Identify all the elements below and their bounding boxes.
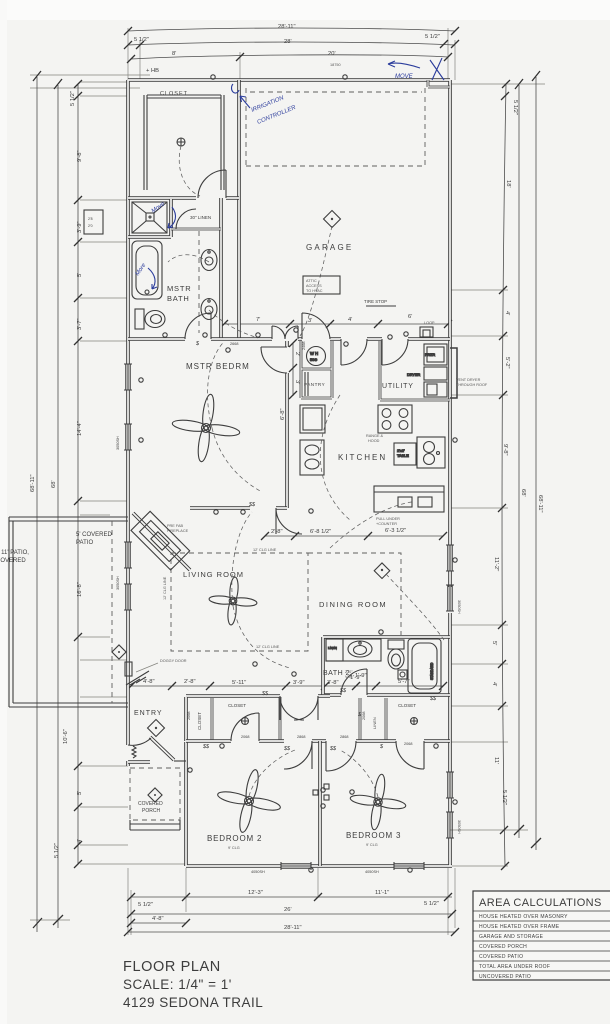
svg-text:STANDARD: STANDARD <box>430 662 434 680</box>
svg-text:TO HVAC: TO HVAC <box>306 289 323 293</box>
svg-text:+COUNTER: +COUNTER <box>376 522 397 526</box>
svg-text:5': 5' <box>77 273 83 277</box>
svg-text:LOOP: LOOP <box>424 321 435 325</box>
svg-text:2468: 2468 <box>302 342 306 350</box>
svg-text:2'-8": 2'-8" <box>184 679 196 685</box>
svg-text:FRZR: FRZR <box>425 353 435 357</box>
svg-text:CLOSET: CLOSET <box>160 91 188 97</box>
svg-text:5 1/2": 5 1/2" <box>70 91 76 106</box>
svg-text:6'-8 1/2": 6'-8 1/2" <box>310 529 331 535</box>
svg-text:DRYER: DRYER <box>407 373 420 377</box>
svg-text:2'-8": 2'-8" <box>271 529 283 535</box>
svg-text:2068: 2068 <box>362 712 366 720</box>
svg-text:AREA CALCULATIONS: AREA CALCULATIONS <box>479 897 602 909</box>
svg-text:COVERED PATIO: COVERED PATIO <box>479 954 523 960</box>
svg-text:11': 11' <box>493 757 499 764</box>
svg-text:GARAGE AND STORAGE: GARAGE AND STORAGE <box>479 934 544 940</box>
svg-text:$$: $$ <box>283 746 291 752</box>
svg-text:$$: $$ <box>248 502 256 508</box>
svg-text:68'-11": 68'-11" <box>30 474 36 492</box>
svg-text:2868: 2868 <box>297 735 305 739</box>
svg-text:9'-8": 9'-8" <box>77 150 83 162</box>
svg-text:UTILITY: UTILITY <box>382 383 414 390</box>
svg-text:2868: 2868 <box>340 735 348 739</box>
svg-text:5': 5' <box>491 641 497 645</box>
svg-text:LIVING ROOM: LIVING ROOM <box>183 570 244 579</box>
svg-text:3'-7": 3'-7" <box>77 318 83 330</box>
svg-text:26': 26' <box>284 907 292 913</box>
svg-text:CLOSET: CLOSET <box>398 703 416 708</box>
svg-text:30" LINEN: 30" LINEN <box>190 215 211 220</box>
svg-text:10' X 11' PATIO,: 10' X 11' PATIO, <box>0 550 29 556</box>
svg-text:68'-11": 68'-11" <box>537 495 543 513</box>
svg-text:VENT DRYER: VENT DRYER <box>456 378 481 382</box>
svg-text:3050SH: 3050SH <box>457 600 461 614</box>
svg-text:HOOD: HOOD <box>368 439 380 443</box>
svg-text:2068: 2068 <box>187 712 191 720</box>
svg-text:DINING ROOM: DINING ROOM <box>319 600 387 609</box>
svg-text:DOGGY DOOR: DOGGY DOOR <box>160 659 187 663</box>
svg-text:BATH: BATH <box>167 294 190 303</box>
svg-text:TIRE STOP: TIRE STOP <box>364 299 387 304</box>
svg-text:20': 20' <box>328 51 336 57</box>
svg-text:18': 18' <box>505 180 511 188</box>
svg-text:TABLE: TABLE <box>397 454 409 458</box>
svg-text:12' CLG LINE: 12' CLG LINE <box>253 548 277 552</box>
svg-text:68': 68' <box>520 489 526 497</box>
svg-text:28'-11": 28'-11" <box>278 24 296 30</box>
svg-text:4'-8": 4'-8" <box>152 916 164 922</box>
svg-text:3050SH: 3050SH <box>457 820 461 834</box>
svg-text:KITCHEN: KITCHEN <box>338 453 387 462</box>
svg-text:LINEN: LINEN <box>372 717 377 729</box>
svg-text:5 1/2": 5 1/2" <box>501 790 507 805</box>
svg-text:3': 3' <box>294 380 300 384</box>
svg-text:PATIO: PATIO <box>76 540 93 546</box>
svg-text:4050SH: 4050SH <box>251 870 265 874</box>
svg-text:VAN: VAN <box>345 675 353 679</box>
svg-text:6'-3 1/2": 6'-3 1/2" <box>385 528 406 534</box>
svg-text:PRE FAB: PRE FAB <box>167 524 184 528</box>
svg-text:5 1/2": 5 1/2" <box>512 100 518 115</box>
svg-text:MSTR: MSTR <box>167 284 191 293</box>
svg-text:50G: 50G <box>310 358 317 362</box>
svg-text:9' CLG: 9' CLG <box>366 843 378 847</box>
svg-text:2'8: 2'8 <box>88 217 93 221</box>
svg-text:$$: $$ <box>329 746 337 752</box>
svg-text:2'-0": 2'-0" <box>345 670 353 674</box>
svg-text:ENTRY: ENTRY <box>134 710 163 717</box>
svg-text:PORCH: PORCH <box>142 808 160 814</box>
svg-text:ATTIC: ATTIC <box>306 279 317 283</box>
svg-text:5 1/2": 5 1/2" <box>134 37 149 43</box>
svg-text:12'-3": 12'-3" <box>248 890 263 896</box>
svg-text:COVERED PORCH: COVERED PORCH <box>479 944 527 950</box>
svg-text:6': 6' <box>408 314 412 320</box>
svg-text:5 1/2": 5 1/2" <box>424 901 439 907</box>
svg-text:+ HB: + HB <box>146 68 159 74</box>
svg-text:HOUSE HEATED OVER MASONRY: HOUSE HEATED OVER MASONRY <box>479 914 568 920</box>
svg-text:7': 7' <box>256 317 260 323</box>
svg-text:BEDROOM 2: BEDROOM 2 <box>207 834 262 843</box>
svg-text:4': 4' <box>348 317 352 323</box>
svg-text:2'x2': 2'x2' <box>397 449 405 453</box>
svg-text:2': 2' <box>294 352 300 356</box>
svg-text:9'-8": 9'-8" <box>502 444 508 456</box>
svg-text:16'-8": 16'-8" <box>77 582 83 597</box>
svg-text:FLOOR PLAN: FLOOR PLAN <box>123 959 221 975</box>
svg-text:4'-8": 4'-8" <box>143 679 155 685</box>
svg-text:SCALE: 1/4" = 1': SCALE: 1/4" = 1' <box>123 977 232 992</box>
svg-text:12' CLG LINE: 12' CLG LINE <box>256 645 280 649</box>
svg-text:10'-6": 10'-6" <box>63 729 69 744</box>
svg-text:COVERED: COVERED <box>138 801 163 807</box>
svg-text:4129 SEDONA TRAIL: 4129 SEDONA TRAIL <box>123 995 263 1010</box>
svg-text:BEDROOM 3: BEDROOM 3 <box>346 831 401 840</box>
svg-text:MSTR BEDRM: MSTR BEDRM <box>186 362 250 371</box>
svg-text:14'-4": 14'-4" <box>77 421 83 436</box>
svg-text:2'0: 2'0 <box>88 224 93 228</box>
svg-text:4050SH: 4050SH <box>365 870 379 874</box>
svg-text:MOVE: MOVE <box>395 74 414 80</box>
svg-text:5'-11": 5'-11" <box>232 680 246 686</box>
svg-text:4': 4' <box>491 682 497 686</box>
svg-text:$$: $$ <box>261 691 269 697</box>
svg-text:THROUGH ROOF: THROUGH ROOF <box>456 383 488 387</box>
svg-text:3'-9": 3'-9" <box>293 680 305 686</box>
svg-text:$$: $$ <box>339 688 347 694</box>
svg-text:8': 8' <box>172 51 176 57</box>
svg-text:3'-9": 3'-9" <box>77 221 83 233</box>
svg-text:2068: 2068 <box>404 742 412 746</box>
svg-text:3050SH: 3050SH <box>116 436 120 450</box>
svg-text:2668: 2668 <box>230 342 238 346</box>
svg-text:FIREPLACE: FIREPLACE <box>167 529 189 533</box>
svg-text:18750: 18750 <box>330 63 341 67</box>
svg-text:UNCOVERED PATIO: UNCOVERED PATIO <box>479 974 531 980</box>
svg-text:GARAGE: GARAGE <box>306 243 353 252</box>
svg-text:CLOSET: CLOSET <box>228 703 246 708</box>
svg-text:2068: 2068 <box>241 735 249 739</box>
svg-text:6'-8": 6'-8" <box>280 408 286 420</box>
svg-text:5 1/2": 5 1/2" <box>138 902 153 908</box>
svg-text:5' COVERED: 5' COVERED <box>76 532 112 538</box>
svg-text:LINEN: LINEN <box>328 646 337 650</box>
svg-text:3'-8": 3'-8" <box>327 680 339 686</box>
svg-text:4': 4' <box>77 839 83 843</box>
svg-text:$$: $$ <box>429 696 437 702</box>
svg-text:PANTRY: PANTRY <box>304 382 325 387</box>
svg-text:1'-9": 1'-9" <box>355 673 367 679</box>
svg-text:1/2 COVERED: 1/2 COVERED <box>0 558 26 564</box>
svg-text:11'-1": 11'-1" <box>375 890 389 896</box>
svg-text:RANGE &: RANGE & <box>366 434 384 438</box>
svg-text:W H: W H <box>310 351 318 356</box>
svg-text:4': 4' <box>504 311 510 315</box>
svg-text:5 1/2": 5 1/2" <box>54 843 60 858</box>
svg-text:3050SH: 3050SH <box>116 576 120 590</box>
svg-text:ACCESS: ACCESS <box>306 284 322 288</box>
svg-text:28': 28' <box>284 39 292 45</box>
svg-text:TOTAL AREA UNDER ROOF: TOTAL AREA UNDER ROOF <box>479 964 550 970</box>
svg-text:68': 68' <box>51 480 57 488</box>
svg-text:28'-11": 28'-11" <box>284 925 302 931</box>
svg-text:5': 5' <box>77 791 83 795</box>
svg-text:PULL UNDER: PULL UNDER <box>376 517 400 521</box>
svg-text:5'-2": 5'-2" <box>504 357 510 369</box>
svg-text:11'-2": 11'-2" <box>493 557 499 571</box>
svg-text:CLOSET: CLOSET <box>197 712 202 730</box>
svg-text:$$: $$ <box>202 744 210 750</box>
svg-text:9' CLG: 9' CLG <box>228 846 240 850</box>
svg-text:HOUSE HEATED OVER FRAME: HOUSE HEATED OVER FRAME <box>479 924 560 930</box>
svg-text:5 1/2": 5 1/2" <box>425 34 440 40</box>
svg-text:3': 3' <box>308 318 312 324</box>
svg-text:12' CLG LINE: 12' CLG LINE <box>163 576 167 600</box>
